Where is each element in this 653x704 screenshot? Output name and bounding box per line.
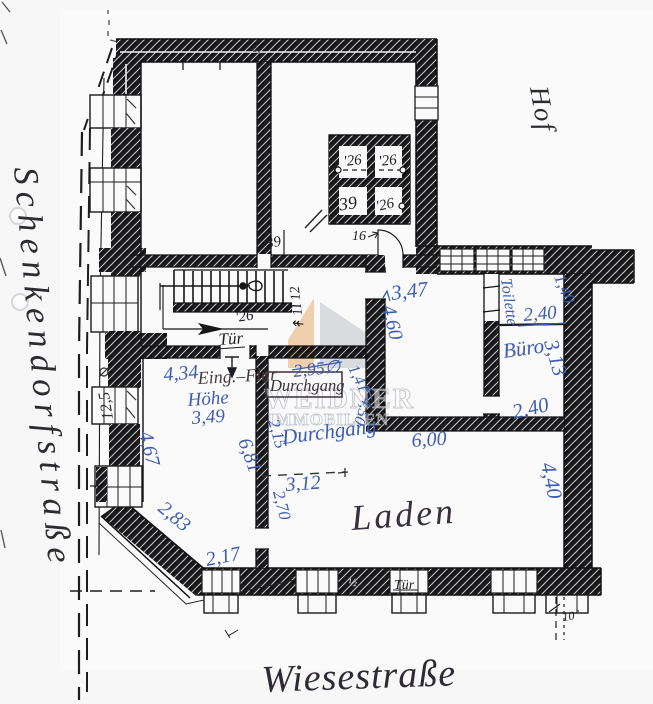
svg-text:ʹ39: ʹ39 xyxy=(334,192,358,215)
svg-text:3,49: 3,49 xyxy=(190,406,226,429)
svg-text:6,: 6, xyxy=(252,43,261,55)
svg-text:Laden: Laden xyxy=(349,491,458,538)
svg-text:½: ½ xyxy=(348,575,357,589)
svg-text:6,00: 6,00 xyxy=(411,428,447,452)
svg-text:Tür: Tür xyxy=(394,578,415,593)
svg-text:ʹ26: ʹ26 xyxy=(378,152,398,170)
svg-text:4,34: 4,34 xyxy=(163,361,200,386)
svg-text:3,47: 3,47 xyxy=(389,276,431,305)
svg-text:16: 16 xyxy=(352,229,366,244)
svg-text:Wiesestraße: Wiesestraße xyxy=(261,652,457,701)
svg-text:ʹ26: ʹ26 xyxy=(234,308,255,326)
svg-text:2,40: 2,40 xyxy=(523,302,558,326)
svg-text:Tür: Tür xyxy=(218,328,244,349)
svg-text:ʹ26: ʹ26 xyxy=(343,152,363,170)
